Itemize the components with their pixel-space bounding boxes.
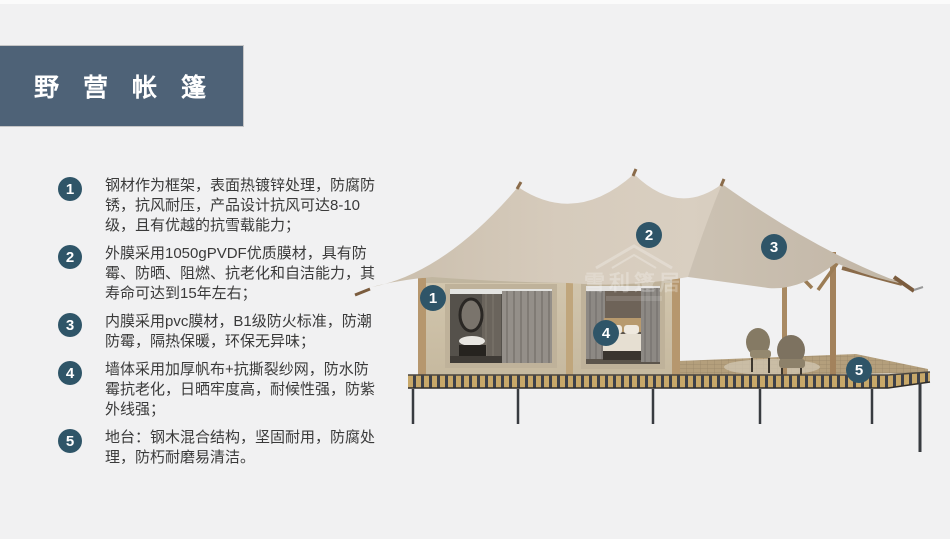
watermark-subline xyxy=(606,296,662,301)
feature-item: 1 钢材作为框架，表面热镀锌处理，防腐防锈，抗风耐压，产品设计抗风可达8-10级… xyxy=(58,176,388,236)
image-marker-3: 3 xyxy=(761,234,787,260)
feature-item: 2 外膜采用1050gPVDF优质膜材，具有防霉、防晒、阻燃、抗老化和自洁能力，… xyxy=(58,244,388,304)
feature-number-badge: 5 xyxy=(58,429,82,453)
spar-hook xyxy=(914,287,923,290)
feature-item: 3 内膜采用pvc膜材，B1级防火标准，防潮防霉，隔热保暖，环保无异味； xyxy=(58,312,388,352)
sink xyxy=(459,336,485,346)
page-title: 野营帐篷 xyxy=(34,68,230,104)
page-title-banner: 野营帐篷 xyxy=(0,46,243,126)
feature-text: 内膜采用pvc膜材，B1级防火标准，防潮防霉，隔热保暖，环保无异味； xyxy=(105,312,377,352)
pillow xyxy=(624,325,639,334)
feature-item: 5 地台：钢木混合结构，坚固耐用，防腐处理，防朽耐磨易清洁。 xyxy=(58,428,388,468)
roof-underside-shade xyxy=(688,184,904,288)
feature-text: 墙体采用加厚帆布+抗撕裂纱网，防水防霉抗老化，日晒牢度高，耐候性强，防紫外线强； xyxy=(105,360,377,420)
feature-text: 地台：钢木混合结构，坚固耐用，防腐处理，防朽耐磨易清洁。 xyxy=(105,428,377,468)
cabin-middle-batten xyxy=(566,281,573,377)
pole-tip xyxy=(517,182,521,189)
image-marker-4: 4 xyxy=(593,320,619,346)
pole-tip xyxy=(633,169,636,176)
pole-tip xyxy=(721,179,724,186)
image-marker-5: 5 xyxy=(846,357,872,383)
feature-item: 4 墙体采用加厚帆布+抗撕裂纱网，防水防霉抗老化，日晒牢度高，耐候性强，防紫外线… xyxy=(58,360,388,420)
feature-number-badge: 1 xyxy=(58,177,82,201)
feature-text: 钢材作为框架，表面热镀锌处理，防腐防锈，抗风耐压，产品设计抗风可达8-10级，且… xyxy=(105,176,377,236)
window-bathroom xyxy=(445,284,557,368)
feature-number-badge: 2 xyxy=(58,245,82,269)
deck-rug xyxy=(724,359,820,375)
watermark-text: 雪利篷居 xyxy=(584,271,684,295)
image-marker-2: 2 xyxy=(636,222,662,248)
mirror xyxy=(460,299,482,331)
platform xyxy=(408,372,930,452)
feature-number-badge: 4 xyxy=(58,361,82,385)
feature-number-badge: 3 xyxy=(58,313,82,337)
image-marker-1: 1 xyxy=(420,285,446,311)
feature-text: 外膜采用1050gPVDF优质膜材，具有防霉、防晒、阻燃、抗老化和自洁能力，其寿… xyxy=(105,244,377,304)
feature-list: 1 钢材作为框架，表面热镀锌处理，防腐防锈，抗风耐压，产品设计抗风可达8-10级… xyxy=(58,176,388,476)
